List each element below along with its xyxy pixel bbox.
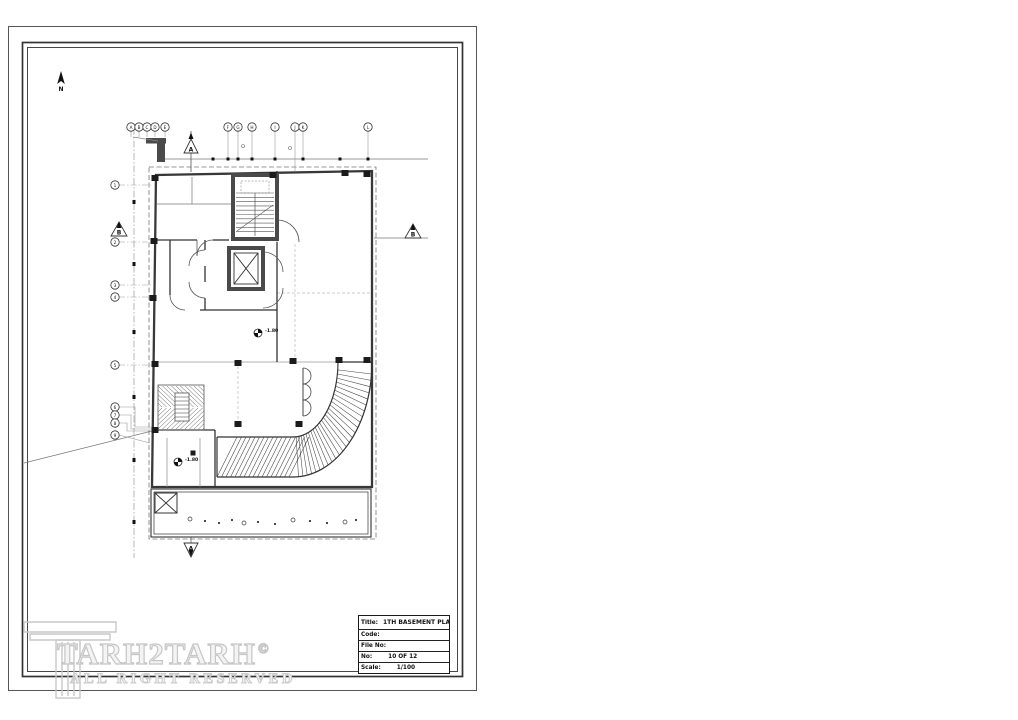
grid-bubble-label: 6 [114, 405, 117, 410]
watermark-tagline: ALL RIGHT RESERVED [70, 671, 296, 688]
section-marker-left: B [111, 222, 127, 237]
no-label: No: [359, 654, 372, 660]
title-block-row: Code: [359, 629, 449, 640]
grid-bubble-label: 3 [114, 283, 117, 288]
survey-mark [289, 147, 292, 150]
column [270, 172, 277, 178]
title-block-row: Title: 1TH BASEMENT PLAN [359, 616, 449, 629]
column [290, 358, 297, 364]
elevator [229, 248, 263, 289]
grid-bubble-label: G [236, 125, 239, 130]
building-outline [152, 171, 372, 487]
title-block-row: No: 10 OF 12 [359, 651, 449, 662]
section-label: B [117, 230, 122, 237]
grid-bubble-label: E [164, 125, 167, 130]
column [336, 357, 343, 363]
floor-plan-drawing: N ABCDEFGHIJKL 123456789 [0, 0, 1018, 720]
grid-bubble-label: K [302, 125, 305, 130]
column [235, 360, 242, 366]
grid-bubble-label: 9 [114, 433, 117, 438]
grid-bubble-label: J [293, 125, 295, 130]
north-arrow-icon [57, 71, 65, 84]
title-label: Title: [359, 620, 378, 626]
column [191, 451, 196, 456]
page: N ABCDEFGHIJKL 123456789 [0, 0, 1018, 720]
survey-mark [242, 145, 245, 148]
title-value: 1TH BASEMENT PLAN [383, 619, 449, 626]
grid-bubbles-left: 123456789 [111, 181, 152, 443]
title-block-row: File No: [359, 640, 449, 651]
grid-bubble-label: H [250, 125, 253, 130]
section-label: A [189, 546, 194, 553]
watermark-brand: TARH2TARH© [57, 636, 270, 672]
column [342, 170, 349, 176]
bottom-strip [151, 489, 371, 537]
column [152, 361, 159, 367]
grid-bubble-label: B [138, 125, 141, 130]
column [364, 171, 371, 177]
entry-wall-stub [133, 137, 166, 162]
north-label: N [58, 86, 63, 93]
fileno-label: File No: [359, 643, 386, 649]
watermark-brand-text: TARH2TARH [57, 636, 256, 671]
column [364, 357, 371, 363]
column [296, 421, 303, 427]
stair-core [233, 175, 277, 239]
scale-label: Scale: [359, 665, 381, 671]
ramp [217, 362, 372, 477]
no-value: 10 OF 12 [388, 654, 417, 660]
section-marker-bottom: A [184, 543, 198, 557]
level-value: -1.80 [265, 328, 278, 334]
structure-lines [152, 177, 372, 424]
grid-bubble-label: 1 [114, 183, 117, 188]
column [235, 421, 242, 427]
column [151, 238, 158, 244]
section-label: A [189, 147, 194, 154]
section-label: B [411, 232, 416, 239]
column [150, 295, 157, 301]
column [152, 175, 159, 181]
north-arrow: N [57, 71, 65, 93]
grid-bubble-label: A [130, 125, 133, 130]
grid-bubble-label: C [146, 125, 149, 130]
grid-bubble-label: 8 [114, 421, 117, 426]
copyright-symbol: © [258, 642, 269, 657]
level-marker: -1.80 [174, 457, 198, 466]
code-label: Code: [359, 632, 380, 638]
grid-bubble-label: 4 [114, 295, 117, 300]
scale-value: 1/100 [397, 665, 415, 671]
grid-bubble-label: 7 [114, 413, 117, 418]
title-block-row: Scale: 1/100 [359, 662, 449, 673]
level-marker: -1.80 [254, 328, 278, 337]
column [152, 427, 159, 433]
grid-bubble-label: I [274, 125, 275, 130]
grid-bubble-label: 2 [114, 240, 117, 245]
reference-lines [24, 159, 428, 543]
section-marker-right: B [405, 224, 421, 239]
grid-bubble-label: 5 [114, 363, 117, 368]
grid-bubble-label: D [153, 125, 156, 130]
title-block: Title: 1TH BASEMENT PLAN Code: File No: … [358, 615, 450, 674]
level-value: -1.80 [185, 457, 198, 463]
section-marker-top: A [184, 131, 198, 172]
